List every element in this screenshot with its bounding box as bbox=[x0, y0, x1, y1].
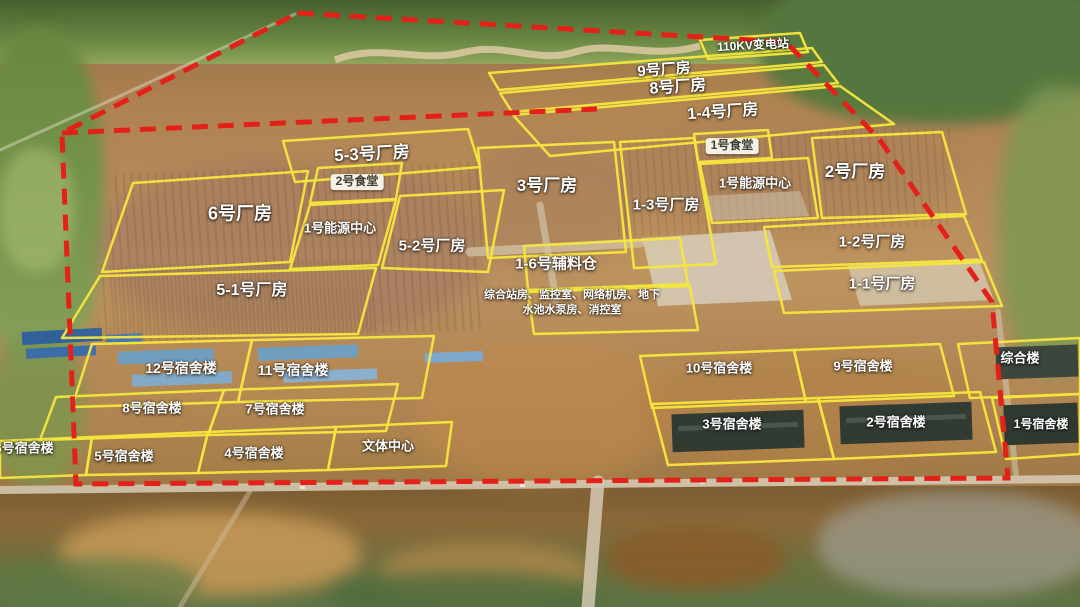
zone-outline-dorm-3 bbox=[652, 398, 834, 465]
zone-outline-complex-building bbox=[958, 338, 1080, 398]
zone-outline-factory-6 bbox=[102, 171, 308, 272]
zone-outline-culture-sports-center bbox=[328, 422, 452, 470]
zone-outline-canteen-1 bbox=[694, 130, 772, 162]
zone-outline-factory-5-1 bbox=[62, 268, 376, 338]
zone-outline-factory-3 bbox=[478, 142, 626, 258]
zone-outline-factory-1-2 bbox=[764, 216, 982, 267]
zone-outline-dorm-6 bbox=[0, 437, 92, 478]
zone-outline-factory-2 bbox=[812, 132, 966, 218]
zone-outline-energy-center-west bbox=[290, 200, 396, 269]
zone-outline-energy-center-east bbox=[700, 158, 818, 223]
zone-outline-dorm-4 bbox=[198, 427, 336, 473]
zone-outline-dorm-5 bbox=[86, 432, 208, 475]
zone-outlines-group bbox=[0, 33, 1080, 478]
zone-outline-canteen-2 bbox=[310, 163, 402, 203]
construction-site-aerial-map: 110KV变电站9号厂房8号厂房1-4号厂房5-3号厂房2号食堂6号厂房1号能源… bbox=[0, 0, 1080, 607]
zone-outline-service-rooms bbox=[528, 286, 698, 334]
annotation-overlay-svg bbox=[0, 0, 1080, 607]
zone-outline-dorm-2 bbox=[818, 392, 996, 459]
